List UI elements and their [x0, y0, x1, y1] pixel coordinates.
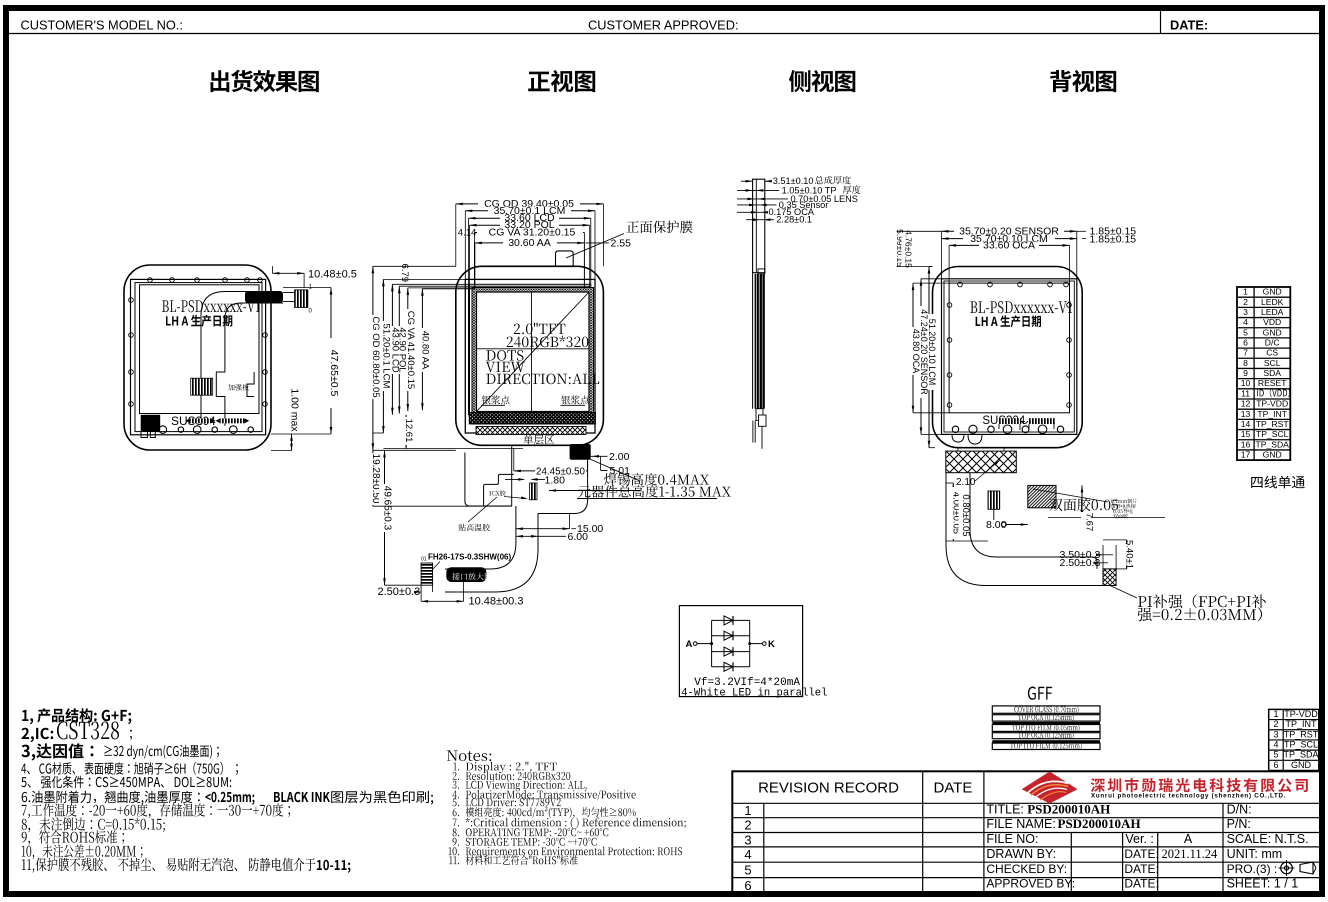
svg-text:CS: CS	[1266, 348, 1278, 358]
svg-text:TP_RST: TP_RST	[1256, 419, 1290, 429]
svg-text:PRO.(3) :: PRO.(3) :	[1227, 862, 1278, 876]
svg-text:DATE: DATE	[933, 780, 972, 797]
svg-text:TP_SCL: TP_SCL	[1256, 429, 1289, 439]
svg-text:TP_INT: TP_INT	[1285, 719, 1317, 729]
svg-text:14: 14	[1241, 419, 1251, 429]
svg-text:2.55: 2.55	[611, 237, 632, 249]
svg-text:1: 1	[1243, 287, 1248, 297]
svg-text:6: 6	[1243, 337, 1248, 347]
svg-text:7: 7	[1243, 348, 1248, 358]
svg-text:SDA: SDA	[1263, 368, 1281, 378]
svg-text:7.67: 7.67	[1084, 513, 1095, 532]
svg-text:1.85±0.15: 1.85±0.15	[1090, 233, 1137, 245]
svg-text:6.00: 6.00	[568, 531, 589, 543]
svg-text:6: 6	[744, 878, 751, 893]
svg-text:REVISION RECORD: REVISION RECORD	[758, 780, 899, 797]
svg-text:TP_SDA: TP_SDA	[1283, 750, 1318, 760]
svg-text:16: 16	[1241, 439, 1251, 449]
svg-text:LEDA: LEDA	[1261, 307, 1284, 317]
svg-text:9: 9	[1243, 368, 1248, 378]
svg-text:TP_INT: TP_INT	[1257, 409, 1287, 419]
svg-text:8.00: 8.00	[986, 519, 1007, 531]
svg-text:D/N:: D/N:	[1227, 802, 1252, 816]
svg-text:TP-VDD: TP-VDD	[1256, 399, 1288, 409]
svg-text:2.10: 2.10	[956, 477, 976, 488]
svg-text:2: 2	[1243, 297, 1248, 307]
svg-text:VDD: VDD	[1263, 317, 1281, 327]
svg-text:PSD200010AH: PSD200010AH	[1058, 816, 1141, 831]
svg-text:GND: GND	[1263, 450, 1282, 460]
svg-text:SHEET: 1 / 1: SHEET: 1 / 1	[1227, 877, 1299, 891]
svg-text:5: 5	[1273, 750, 1278, 760]
svg-text:APPROVED BY:: APPROVED BY:	[986, 877, 1075, 891]
svg-text:DATE:: DATE:	[1170, 18, 1208, 33]
svg-text:DRAWN BY:: DRAWN BY:	[986, 847, 1056, 861]
svg-text:TP_RST: TP_RST	[1284, 729, 1319, 739]
svg-text:0.80±0.05: 0.80±0.05	[960, 494, 971, 536]
svg-text:2.28±0.1: 2.28±0.1	[776, 215, 812, 225]
svg-text:PSD200010AH: PSD200010AH	[1027, 801, 1110, 816]
svg-text:1: 1	[1273, 709, 1278, 719]
svg-text:CUSTOMER APPROVED:: CUSTOMER APPROVED:	[588, 18, 739, 33]
svg-text:3.51±0.10: 3.51±0.10	[773, 176, 814, 186]
svg-text:P/N:: P/N:	[1227, 817, 1251, 831]
svg-text:DATE:: DATE:	[1124, 847, 1158, 861]
svg-text:RESET: RESET	[1258, 378, 1287, 388]
svg-text:A: A	[1184, 832, 1193, 846]
svg-text:FH26-17S-0.3SHW(06): FH26-17S-0.3SHW(06)	[428, 553, 511, 562]
svg-text:10.48±0.5: 10.48±0.5	[308, 269, 357, 281]
svg-text:SCALE: N.T.S.: SCALE: N.T.S.	[1227, 832, 1309, 846]
svg-text:4: 4	[1273, 740, 1278, 750]
svg-text:5: 5	[744, 863, 751, 878]
svg-text:15: 15	[1241, 429, 1251, 439]
svg-text:2.50±0.3: 2.50±0.3	[378, 586, 421, 598]
svg-text:TITLE:: TITLE:	[986, 802, 1024, 816]
svg-text:40.80 AA: 40.80 AA	[419, 331, 430, 370]
svg-text:SCL: SCL	[1264, 358, 1281, 368]
svg-text:DATE:: DATE:	[1124, 877, 1158, 891]
svg-text:17: 17	[1241, 450, 1251, 460]
svg-text:1: 1	[744, 803, 751, 818]
svg-text:TP_SDA: TP_SDA	[1255, 439, 1289, 449]
svg-text:2021.11.24: 2021.11.24	[1162, 847, 1219, 861]
svg-text:5.40±1: 5.40±1	[1124, 540, 1135, 569]
svg-text:TP_SCL: TP_SCL	[1284, 740, 1318, 750]
svg-text:1.80: 1.80	[545, 474, 566, 486]
svg-text:10: 10	[1241, 378, 1251, 388]
svg-text:0: 0	[309, 309, 313, 315]
svg-text:FILE NAME:: FILE NAME:	[986, 817, 1055, 831]
svg-text:CG OD 60.80±0.05: CG OD 60.80±0.05	[370, 316, 381, 397]
svg-text:47.65±0.5: 47.65±0.5	[328, 350, 340, 397]
svg-text:2: 2	[744, 818, 751, 833]
svg-text:12: 12	[1241, 399, 1251, 409]
svg-text:1.00 max: 1.00 max	[289, 388, 301, 432]
svg-text:49.65±0.3: 49.65±0.3	[382, 486, 393, 531]
svg-text:CHECKED BY:: CHECKED BY:	[986, 862, 1067, 876]
svg-text:FILE NO:: FILE NO:	[986, 832, 1038, 846]
svg-text:6: 6	[1273, 760, 1278, 770]
svg-text:5: 5	[1243, 327, 1248, 337]
svg-text:Xunrui photoelectric technolog: Xunrui photoelectric technology (shenzhe…	[1091, 793, 1286, 800]
svg-text:13: 13	[1241, 409, 1251, 419]
svg-text:4.14: 4.14	[458, 228, 477, 239]
svg-text:10.48±00.3: 10.48±00.3	[469, 596, 524, 608]
svg-text:3: 3	[1243, 307, 1248, 317]
svg-text:4: 4	[1243, 317, 1248, 327]
svg-text:33.60 OCA: 33.60 OCA	[983, 240, 1035, 252]
svg-text:GND: GND	[1263, 327, 1282, 337]
svg-text:GND: GND	[1263, 287, 1282, 297]
svg-text:12.61: 12.61	[403, 419, 414, 443]
svg-text:TP-VDD: TP-VDD	[1284, 709, 1318, 719]
svg-text:4: 4	[744, 847, 751, 862]
svg-text:2.00: 2.00	[609, 451, 630, 463]
svg-text:11: 11	[1241, 388, 1250, 398]
svg-text:3: 3	[744, 832, 751, 847]
svg-text:K: K	[768, 639, 775, 650]
svg-text:A: A	[686, 639, 693, 650]
svg-text:Ver. :: Ver. :	[1125, 832, 1154, 846]
svg-text:30.60 AA: 30.60 AA	[508, 237, 551, 249]
svg-text:CUSTOMER'S MODEL NO.:: CUSTOMER'S MODEL NO.:	[21, 18, 183, 33]
svg-text:01: 01	[421, 557, 427, 563]
svg-text:CG VA 41.40±0.15: CG VA 41.40±0.15	[405, 311, 416, 389]
svg-text:43.80 OCA: 43.80 OCA	[911, 329, 921, 374]
svg-text:2: 2	[1273, 719, 1278, 729]
svg-text:DATE:: DATE:	[1124, 862, 1158, 876]
svg-text:8: 8	[1243, 358, 1248, 368]
svg-text:4-White LED in parallel: 4-White LED in parallel	[681, 688, 827, 700]
svg-text:D/C: D/C	[1265, 337, 1280, 347]
svg-text:UNIT: mm: UNIT: mm	[1227, 847, 1283, 861]
svg-text:GND: GND	[1291, 760, 1312, 770]
svg-text:4.76±0.15: 4.76±0.15	[904, 230, 914, 268]
svg-text:3: 3	[1273, 729, 1278, 739]
svg-text:LEDK: LEDK	[1261, 297, 1284, 307]
